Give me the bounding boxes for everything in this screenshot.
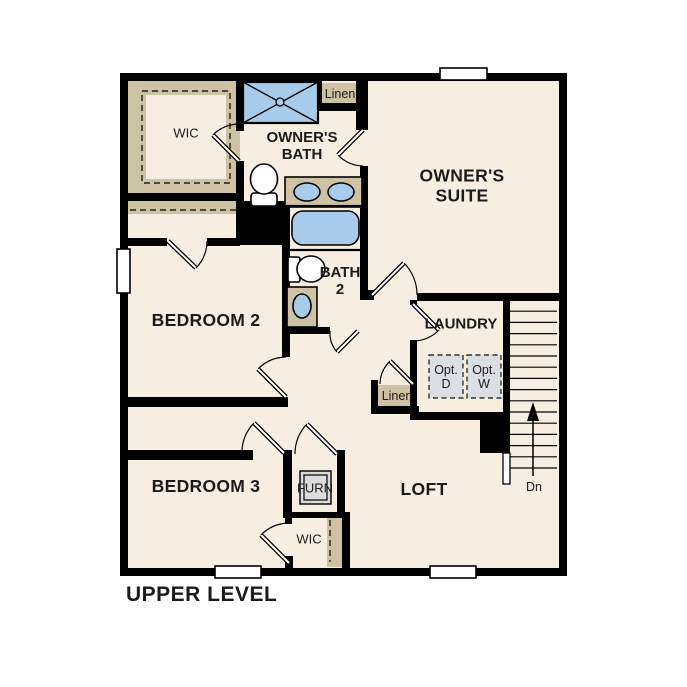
wall-segment [337, 450, 345, 512]
toilet-tank [251, 193, 277, 206]
room-label-owners-bath: OWNER'S BATH [266, 130, 337, 164]
room-label-bedroom3: BEDROOM 3 [152, 477, 261, 497]
room-label-furnace: FURN [297, 482, 333, 497]
room-label-owners-wic: WIC [173, 127, 198, 142]
room-label-loft: LOFT [401, 480, 448, 500]
wall-segment [283, 450, 292, 518]
label-opt-washer: Opt. W [472, 363, 496, 391]
wall-segment [360, 290, 374, 300]
room-label-laundry: LAUNDRY [425, 317, 498, 334]
room-label-owners-suite: OWNER'S SUITE [419, 166, 504, 205]
wall-segment [283, 512, 350, 518]
floor-plan-drawing [0, 0, 687, 687]
wall-segment [128, 238, 167, 246]
window [215, 566, 261, 578]
page-title: UPPER LEVEL [126, 583, 277, 607]
wall-segment [128, 450, 253, 460]
stairs-side-wall [503, 293, 510, 420]
wall-segment [236, 201, 290, 245]
vanity-sink [294, 183, 320, 201]
shower-drain [276, 98, 284, 106]
vanity-sink [328, 183, 354, 201]
room-label-bath2: BATH 2 [320, 265, 361, 299]
room-label-bedroom3-wic: WIC [296, 533, 321, 548]
wall-segment [128, 397, 288, 407]
bedroom2-closet-shelf [128, 200, 237, 214]
wall-segment [356, 81, 368, 130]
stair-railing [503, 453, 510, 484]
room-label-linen-top: Linen [325, 87, 356, 101]
room-label-linen-hall: Linen [382, 389, 413, 403]
window [430, 566, 476, 578]
shower [243, 82, 318, 123]
window [440, 68, 487, 80]
vanity-sink [293, 294, 311, 318]
wall-segment [207, 238, 240, 246]
label-stairs-down: Dn [526, 480, 542, 494]
bathtub [292, 211, 359, 245]
toilet-bowl [251, 164, 278, 194]
bedroom3-wic-shelf [327, 518, 342, 567]
room-label-bedroom2: BEDROOM 2 [152, 311, 261, 331]
wall-segment [410, 412, 510, 420]
wall-segment [480, 420, 510, 453]
wall-segment [282, 327, 330, 334]
label-opt-dryer: Opt. D [434, 363, 458, 391]
window [117, 249, 130, 293]
wall-segment [316, 103, 362, 111]
floor-plan: WIC OWNER'S BATH Linen OWNER'S SUITE BED… [0, 0, 687, 687]
wall-segment [128, 193, 238, 201]
wall-segment [342, 512, 350, 568]
wall-segment [410, 340, 417, 382]
